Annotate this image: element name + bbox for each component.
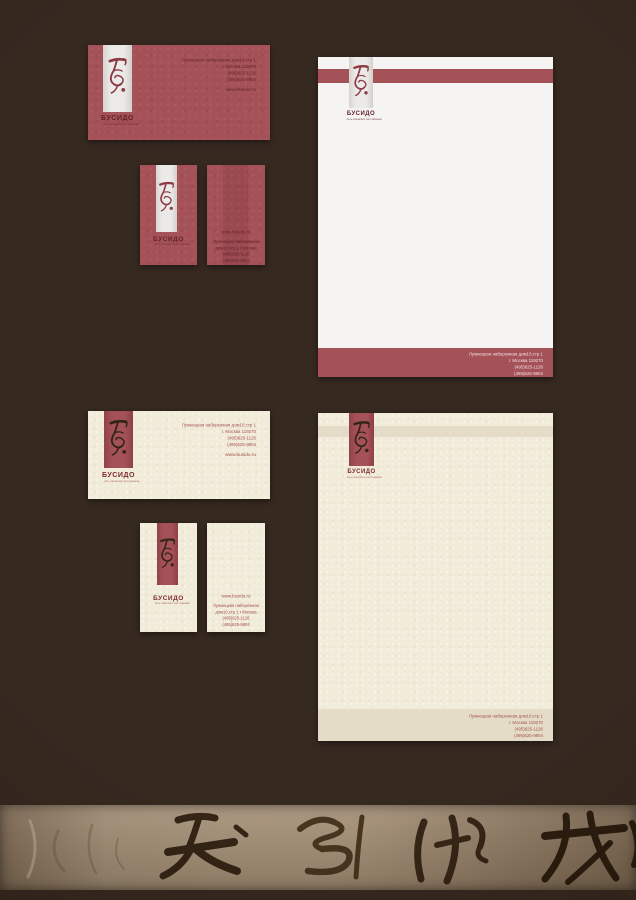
city-line: г. Москва 119270 — [135, 429, 256, 436]
phone-line: (495)625-9804 — [135, 442, 256, 449]
brand-name: БУСИДО — [89, 472, 148, 480]
brand-logo-icon — [351, 417, 372, 462]
phone-line: (495)625-1126 — [135, 435, 256, 442]
brand-logo-icon — [107, 415, 130, 465]
website-text: www.busido.ru — [135, 86, 256, 93]
business-card-red-landscape: БУСИДО сеть японских ресторанов Лужнецка… — [88, 45, 270, 140]
identity-presentation-board: БУСИДО сеть японских ресторанов Лужнецка… — [0, 0, 636, 900]
brand-logo-icon — [158, 529, 177, 581]
brand-logo-icon — [106, 50, 129, 106]
logo-stripe — [104, 411, 133, 468]
phone-line: (495)625-1126 — [422, 726, 543, 733]
business-card-cream-portrait-front: БУСИДО сеть японских ресторанов — [140, 523, 197, 632]
contact-block: Лужнецкая набережная дом10,стр 1 г. Моск… — [422, 713, 543, 741]
contact-block: Лужнецкая набережная дом10,стр 1 г. Моск… — [422, 351, 543, 377]
logo-stripe — [157, 523, 178, 585]
business-card-red-portrait-front: БУСИДО сеть японских ресторанов — [140, 165, 197, 265]
footer-band: Лужнецкая набережная дом10,стр 1 г. Моск… — [318, 348, 553, 377]
business-card-cream-portrait-back: www.busido.ru Лужнецкая набережная дом10… — [207, 523, 265, 632]
phone-line: (495)625-9804 — [422, 733, 543, 740]
address-line: Лужнецкая набережная дом10,стр 1 — [422, 713, 543, 720]
business-card-red-portrait-back: www.busido.ru Лужнецкая набережная дом10… — [207, 165, 265, 265]
logo-stripe — [156, 165, 177, 232]
brand-tagline: сеть японских ресторанов — [104, 480, 132, 483]
contact-block: Лужнецкая набережная дом10,стр 1 г. Моск… — [135, 422, 256, 458]
brand-tagline: сеть японских ресторанов — [155, 243, 182, 246]
address-line: Лужнецкая набережная дом10,стр 1 — [135, 57, 256, 64]
letterhead-cream: БУСИДО сеть японских ресторанов Лужнецка… — [318, 413, 553, 741]
contact-block: www.busido.ru Лужнецкая набережная дом10… — [207, 229, 265, 264]
brand-name: БУСИДО — [88, 115, 147, 123]
brand-tagline: сеть японских ресторанов — [347, 476, 376, 479]
logo-stripe — [349, 413, 374, 466]
brand-logo-icon — [351, 61, 371, 104]
contact-block: www.busido.ru Лужнецкая набережная дом10… — [207, 593, 265, 628]
calligraphy-strokes — [0, 805, 636, 890]
phone-line: (495)625-9804 — [422, 371, 543, 377]
brand-name: БУСИДО — [331, 469, 392, 476]
logo-stripe — [103, 45, 132, 112]
city-line: г. Москва 119270 — [422, 720, 543, 727]
phone-line: (495)625-1126 — [135, 70, 256, 77]
phone-line: (495)625-1126 — [422, 364, 543, 371]
brand-tagline: сеть японских ресторанов — [347, 118, 376, 121]
website-text: www.busido.ru — [135, 451, 256, 458]
contact-block: Лужнецкая набережная дом10,стр 1 г. Моск… — [135, 57, 256, 93]
brand-tagline: сеть японских ресторанов — [103, 123, 131, 126]
phone-line: (495)625-9804 — [135, 77, 256, 84]
brand-logo-icon — [157, 171, 176, 226]
website-text: www.busido.ru — [207, 229, 265, 236]
logo-stripe — [349, 57, 373, 108]
phone-line: (495)625-9804 — [207, 622, 265, 628]
website-text: www.busido.ru — [207, 593, 265, 600]
brand-tagline: сеть японских ресторанов — [155, 602, 182, 605]
brand-name: БУСИДО — [331, 111, 391, 118]
envelope-cream: БУСИДО сеть японских ресторанов Лужнецка… — [88, 411, 270, 499]
calligraphy-banner — [0, 805, 636, 890]
address-line: Лужнецкая набережная дом10,стр 1 — [135, 422, 256, 429]
city-line: г. Москва 119270 — [422, 358, 543, 365]
phone-line: (495)625-9804 — [207, 258, 265, 264]
city-line: г. Москва 119270 — [135, 64, 256, 71]
letterhead-red: БУСИДО сеть японских ресторанов Лужнецка… — [318, 57, 553, 377]
address-line: Лужнецкая набережная дом10,стр 1 — [422, 351, 543, 358]
footer-band: Лужнецкая набережная дом10,стр 1 г. Моск… — [318, 709, 553, 741]
